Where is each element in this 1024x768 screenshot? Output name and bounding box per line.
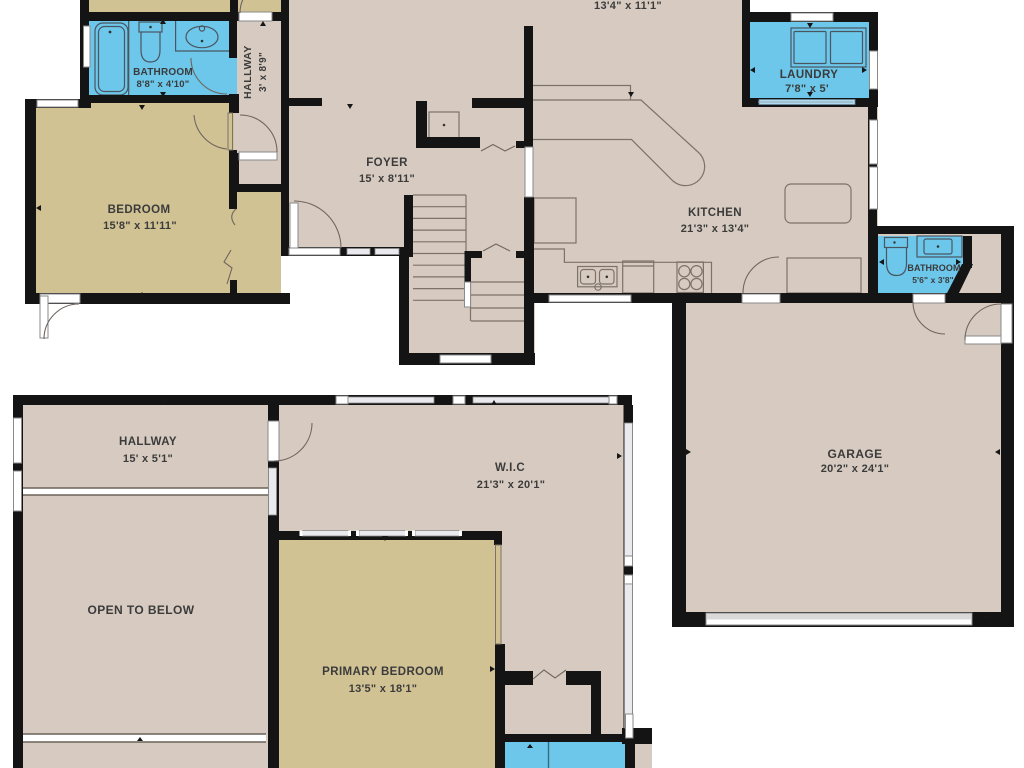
svg-text:BATHROOM: BATHROOM <box>133 67 193 78</box>
svg-text:FOYER: FOYER <box>366 157 408 169</box>
svg-text:8'8" x 4'10": 8'8" x 4'10" <box>137 79 190 90</box>
svg-text:OPEN TO BELOW: OPEN TO BELOW <box>88 603 195 617</box>
svg-text:GARAGE: GARAGE <box>827 447 882 461</box>
svg-text:LAUNDRY: LAUNDRY <box>780 69 839 81</box>
svg-text:21'3" x 13'4": 21'3" x 13'4" <box>681 223 750 235</box>
svg-text:W.I.C: W.I.C <box>495 462 525 474</box>
svg-text:5'6" x 3'8": 5'6" x 3'8" <box>912 275 954 285</box>
svg-text:15' x 5'1": 15' x 5'1" <box>123 453 173 465</box>
svg-text:HALLWAY: HALLWAY <box>242 45 254 99</box>
svg-text:7'8" x 5': 7'8" x 5' <box>785 83 829 95</box>
svg-text:3' x 8'9": 3' x 8'9" <box>258 52 269 92</box>
svg-text:21'3" x 20'1": 21'3" x 20'1" <box>477 479 546 491</box>
svg-text:BEDROOM: BEDROOM <box>108 204 171 216</box>
svg-text:13'5" x 18'1": 13'5" x 18'1" <box>349 683 418 695</box>
svg-text:KITCHEN: KITCHEN <box>688 207 742 219</box>
svg-text:20'2" x 24'1": 20'2" x 24'1" <box>821 463 890 475</box>
svg-text:15'8" x 11'11": 15'8" x 11'11" <box>103 220 177 232</box>
svg-text:15' x 8'11": 15' x 8'11" <box>359 173 415 185</box>
svg-text:PRIMARY BEDROOM: PRIMARY BEDROOM <box>322 666 444 678</box>
svg-text:HALLWAY: HALLWAY <box>119 436 177 448</box>
svg-text:13'4" x 11'1": 13'4" x 11'1" <box>594 0 662 12</box>
svg-text:BATHROOM: BATHROOM <box>907 263 960 273</box>
